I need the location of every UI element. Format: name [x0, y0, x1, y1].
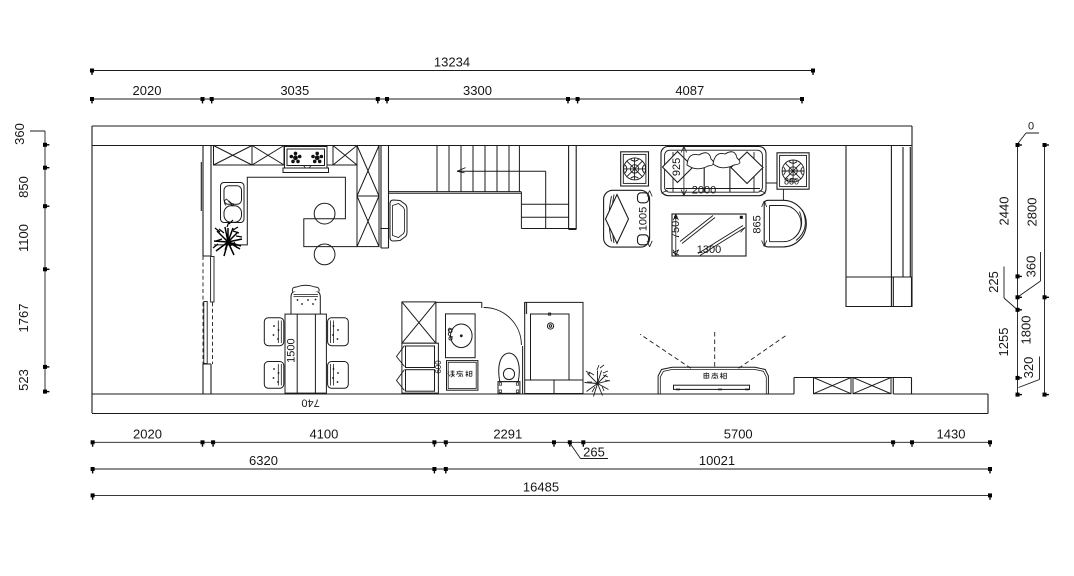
svg-text:2020: 2020 — [133, 83, 162, 98]
svg-text:750: 750 — [670, 221, 682, 239]
svg-text:2020: 2020 — [133, 427, 162, 442]
svg-text:3035: 3035 — [280, 83, 309, 98]
svg-text:16485: 16485 — [523, 480, 559, 495]
svg-text:925: 925 — [671, 158, 683, 176]
svg-text:1300: 1300 — [697, 244, 721, 256]
svg-text:1767: 1767 — [16, 304, 31, 333]
svg-text:850: 850 — [16, 176, 31, 198]
svg-text:225: 225 — [986, 271, 1001, 293]
svg-text:600: 600 — [434, 360, 443, 374]
svg-text:4100: 4100 — [309, 427, 338, 442]
svg-text:1255: 1255 — [996, 328, 1011, 357]
svg-text:0: 0 — [1028, 121, 1034, 133]
svg-text:2800: 2800 — [1025, 198, 1040, 227]
svg-text:1005: 1005 — [638, 207, 650, 231]
svg-text:13234: 13234 — [434, 55, 470, 70]
svg-text:320: 320 — [1021, 357, 1036, 379]
svg-text:4087: 4087 — [675, 83, 704, 98]
svg-text:5700: 5700 — [724, 427, 753, 442]
svg-text:2291: 2291 — [493, 427, 522, 442]
svg-text:1430: 1430 — [937, 427, 966, 442]
svg-text:2440: 2440 — [997, 197, 1012, 226]
svg-text:1500: 1500 — [286, 338, 298, 362]
svg-text:360: 360 — [12, 123, 27, 145]
svg-text:360: 360 — [1024, 256, 1039, 278]
svg-text:2000: 2000 — [692, 185, 716, 197]
svg-text:1800: 1800 — [1019, 316, 1034, 345]
svg-text:740: 740 — [301, 397, 319, 409]
svg-text:6320: 6320 — [249, 453, 278, 468]
svg-text:3300: 3300 — [463, 83, 492, 98]
svg-text:523: 523 — [16, 369, 31, 391]
svg-text:265: 265 — [583, 445, 605, 460]
svg-text:1100: 1100 — [16, 224, 31, 252]
svg-text:865: 865 — [752, 215, 764, 233]
svg-text:10021: 10021 — [699, 453, 735, 468]
svg-text:880: 880 — [784, 177, 799, 187]
